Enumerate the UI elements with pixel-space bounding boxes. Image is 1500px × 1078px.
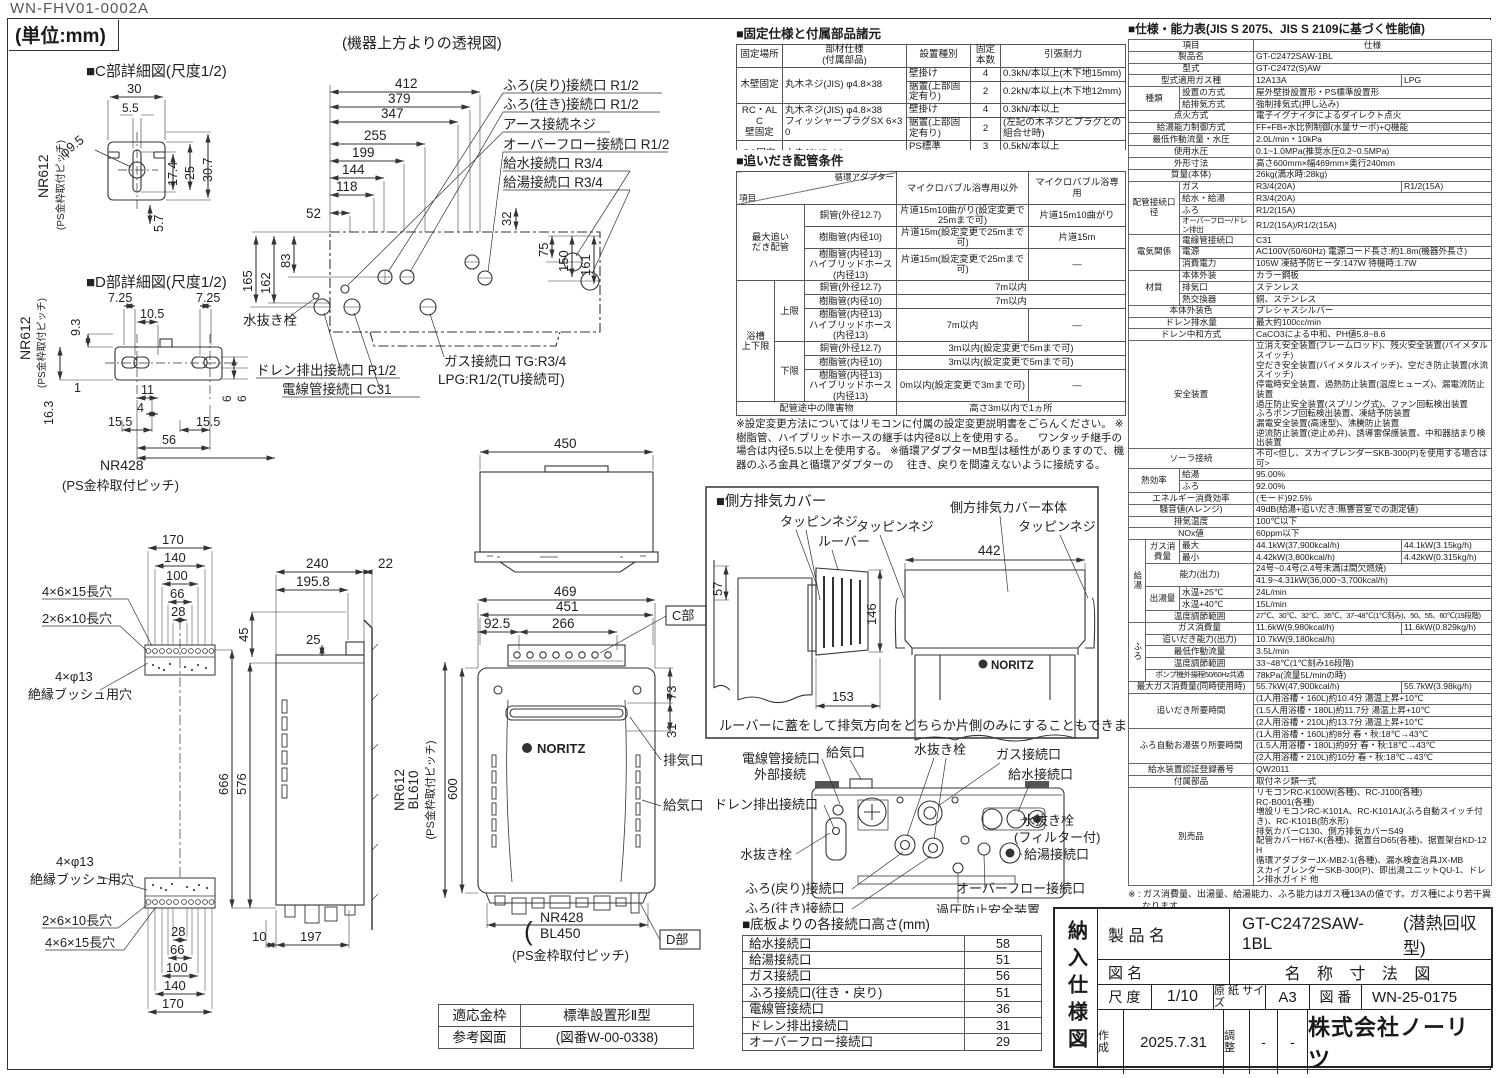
label-rear-overflow: オーバーフロー接続口: [956, 881, 1085, 896]
label-rear-filter-sub: (フィルター付): [1014, 830, 1100, 845]
cell: 0m以内(設定変更で3mまで可): [897, 369, 1029, 402]
cell: R3/4(20A): [1254, 181, 1402, 193]
cell: 樹脂管(内径13) ハイブリッドホース(内径13): [805, 369, 897, 402]
cell: (1.5人用浴槽・180L)約9分 春・秋:18℃→43℃: [1254, 740, 1492, 752]
dim-d-6b: 6: [235, 395, 249, 402]
dim-c-30-7: 30.7: [201, 158, 215, 182]
cell: 0.3kN/本以上: [1001, 104, 1126, 118]
cell: 高さ3m以内で1ヵ所: [897, 402, 1126, 416]
document-code: WN-FHV01-0002A: [10, 0, 149, 17]
dim-469: 469: [554, 584, 577, 599]
cell: 56: [965, 968, 1042, 984]
cell: 給湯接続口: [743, 952, 965, 968]
dim-52: 52: [306, 206, 321, 221]
cell: 11.6kW(0.829kg/h): [1402, 622, 1492, 634]
dim-10: 10: [252, 929, 266, 944]
cell: ポンプ機外揚程50/60Hz共通: [1146, 669, 1254, 681]
label-louver: ルーバー: [818, 534, 870, 549]
dim-c-25: 25: [183, 166, 197, 180]
cell: GT-C2472(S)AW: [1254, 63, 1492, 75]
label-hole-c-sub-bottom: 絶縁ブッシュ用穴: [30, 872, 134, 887]
cell: 銅管(外径12.7): [805, 281, 897, 295]
dim-144: 144: [342, 162, 365, 177]
cell: 11.6kW(9,980kcal/h): [1254, 622, 1402, 634]
cell: ドレン排水量: [1129, 317, 1254, 329]
adjust-value-1: -: [1250, 1010, 1278, 1074]
cell: (1.5人用浴槽・180L)約11.7分 湯温上昇+10℃: [1254, 705, 1492, 717]
cell: 105W 凍結予防ヒータ:147W 待機時:1.7W: [1254, 258, 1492, 270]
dim-451: 451: [556, 599, 579, 614]
cell: 外形寸法: [1129, 157, 1254, 169]
label-nr612: NR612: [392, 769, 407, 811]
cell: 給水・給湯: [1180, 193, 1254, 205]
cell: (モード)92.5%: [1254, 493, 1492, 505]
cell: プレシャスシルバー: [1254, 305, 1492, 317]
drawing-name-value: 名 称 寸 法 図: [1230, 960, 1491, 984]
dim-45: 45: [236, 628, 251, 642]
cell: QW2011: [1254, 764, 1492, 776]
cell: ソーラ接続: [1129, 449, 1254, 469]
cell: 能力(出力): [1146, 563, 1254, 587]
dim-d-6a: 6: [220, 395, 234, 402]
dim-442: 442: [978, 543, 1001, 558]
cell: オーバーフロー接続口: [743, 1034, 965, 1050]
cell: 2: [971, 81, 1001, 104]
cell: ドレン中和方式: [1129, 329, 1254, 341]
dim-d-11: 11: [141, 383, 154, 397]
title-block-side-label: 納入仕様図: [1055, 909, 1098, 1066]
connection-height-table: 給水接続口58 給湯接続口51 ガス接続口56 ふろ接続口(往き・戻り)51 電…: [742, 935, 1042, 1051]
cell: 参考図面: [439, 1027, 521, 1049]
spec-table: 項目仕様 製品名GT-C2472SAW-1BL 型式GT-C2472(S)AW …: [1128, 39, 1492, 886]
c-detail-drawing: ■C部詳細図(尺度1/2) 30 5.5 φ9.5 17.4 25 30.7 5…: [35, 63, 227, 232]
created-label: 作 成: [1098, 1010, 1124, 1074]
cell: FF+FB+水比例制御(水量サーボ)+Q機能: [1254, 122, 1492, 134]
d-pitch2-label: NR428: [100, 457, 144, 473]
cell: ふろ: [1180, 481, 1254, 493]
dim-197: 197: [300, 929, 322, 944]
cell: 熱効率: [1129, 469, 1180, 493]
cell: 追いだき所要時間: [1129, 693, 1254, 728]
cell: 電線管接続口: [743, 1001, 965, 1017]
label-bl450: BL450: [540, 925, 581, 941]
label-rear-drain-plug-filter: 水抜き栓: [1022, 813, 1074, 828]
cell: 7m以内: [897, 309, 1029, 342]
cell: 4.42kW(0.315kg/h): [1402, 552, 1492, 564]
cell: 15L/min: [1254, 599, 1492, 611]
cell: 型式: [1129, 63, 1254, 75]
cell: 丸木ネジ(JIS) φ4.8×38: [783, 67, 907, 104]
cell: NOx値: [1129, 528, 1254, 540]
cell: 木壁固定: [737, 67, 783, 104]
cell: 7m以内: [897, 295, 1126, 309]
label-exhaust-port: 排気口: [663, 753, 704, 768]
cell: 給水装置認証登録番号: [1129, 764, 1254, 776]
cell: 点火方式: [1129, 110, 1254, 122]
drawing-no-value: WN-25-0175: [1362, 985, 1491, 1009]
label-hole-a-bottom: 4×6×15長穴: [45, 935, 115, 950]
drawing-sheet: WN-FHV01-0002A (単位:mm) ■C部詳細図(尺度1/2) 30 …: [0, 0, 1500, 1078]
cell: (2人用浴槽・210L)約10分 春・秋:18℃→43℃: [1254, 752, 1492, 764]
label-hole-b-top: 2×6×10長穴: [42, 611, 112, 626]
cell: ガス接続口: [743, 968, 965, 984]
dim-347: 347: [381, 106, 404, 121]
dim-t66: 66: [170, 586, 184, 601]
cell: 設置種別: [907, 45, 971, 68]
cell: 取付ネジ類一式: [1254, 776, 1492, 788]
cell: ふろ自動お湯張り所要時間: [1129, 728, 1254, 763]
cell: R1/2(15A)/R1/2(15A): [1254, 216, 1492, 234]
top-view-title: (機器上方よりの透視図): [342, 35, 502, 52]
cell: 熱交換器: [1180, 294, 1254, 306]
cell: RC・ALC 壁固定: [737, 104, 783, 141]
dim-d-10-5: 10.5: [140, 307, 164, 321]
cell: 固定本数: [971, 45, 1001, 68]
cell: 給湯: [1180, 469, 1254, 481]
d-pitch-sub: (PS金枠取付ピッチ): [35, 298, 48, 388]
dim-d-1: 1: [74, 381, 81, 395]
cell: 電源: [1180, 246, 1254, 258]
label-hole-c-top: 4×φ13: [55, 669, 93, 684]
cell: 製品名: [1129, 51, 1254, 63]
cell: 4: [971, 67, 1001, 81]
cell: 95.00%: [1254, 469, 1492, 481]
label-cover-body: 側方排気カバー本体: [950, 500, 1067, 515]
cell: 100℃以下: [1254, 516, 1492, 528]
d-pitch2-sub: (PS金枠取付ピッチ): [62, 478, 179, 493]
cell: C31: [1254, 235, 1492, 247]
cell: 0.3kN/本以上(木下地15mm): [1001, 67, 1126, 81]
dim-412: 412: [395, 76, 418, 91]
dim-d-15-5l: 15.5: [108, 415, 132, 429]
side-cover-logo: NORITZ: [991, 660, 1034, 672]
label-hole-c-sub-top: 絶縁ブッシュ用穴: [28, 687, 132, 702]
d-detail-title: ■D部詳細図(尺度1/2): [86, 274, 227, 291]
label-furo-go: ふろ(往き)接続口 R1/2: [503, 96, 639, 112]
cell: 給水接続口: [743, 936, 965, 952]
dim-576: 576: [234, 773, 249, 795]
cell: 強制排気式(押し込み): [1254, 98, 1492, 110]
cell: 消費電力: [1180, 258, 1254, 270]
cell: 本体外装: [1180, 270, 1254, 282]
cell: 型式適用ガス種: [1129, 75, 1254, 87]
cell: 材質: [1129, 270, 1180, 305]
cell: 最低作動流量: [1146, 646, 1254, 658]
side-view-drawing: 240 22 195.8 25 45 666 576 10 197: [215, 556, 393, 948]
spec-title: ■仕様・能力表(JIS S 2075、JIS S 2109に基づく性能値): [1128, 20, 1492, 37]
cell: LPG: [1402, 75, 1492, 87]
dim-162: 162: [258, 272, 273, 294]
product-name-value: GT-C2472SAW-1BL: [1242, 914, 1381, 954]
cell: 44.1kW(3.15kg/h): [1402, 540, 1492, 552]
label-drain-plug: 水抜き栓: [243, 313, 297, 328]
label-hole-a-top: 4×6×15長穴: [42, 584, 112, 599]
cell: 24L/min: [1254, 587, 1492, 599]
reheating-table: 項目 循環アダプター マイクロバブル浴専用以外 マイクロバブル浴専用 最大追い …: [736, 171, 1126, 416]
paper-size-value: A3: [1266, 985, 1310, 1009]
cell: 電線管接続口: [1180, 235, 1254, 247]
dim-600: 600: [445, 778, 460, 800]
cell: ドレン排出接続口: [743, 1017, 965, 1033]
cell: 据置(上部固定有り): [907, 118, 971, 141]
dim-25: 25: [306, 632, 320, 647]
label-rear-gas: ガス接続口: [996, 747, 1061, 762]
reheating-notes: ※設定変更方法についてはリモコンに付属の設定変更説明書をごらんください。 ※樹脂…: [736, 418, 1126, 473]
d-pitch-label: NR612: [17, 316, 33, 360]
cell: 41.9~4.31kW(36,000~3,700kcal/h): [1254, 575, 1492, 587]
scale-label: 尺 度: [1098, 985, 1152, 1009]
cell: 給排気方式: [1180, 98, 1254, 110]
dim-150: 150: [556, 250, 571, 272]
cell: 標準設置形Ⅱ型: [521, 1005, 694, 1027]
dim-83: 83: [278, 254, 293, 268]
label-hole-c-bottom: 4×φ13: [56, 854, 94, 869]
cell: 温度調節範囲: [1146, 610, 1254, 622]
cell: 配管接続口径: [1129, 181, 1180, 235]
cell: 片道15m(設定変更で25mまで可): [897, 248, 1029, 281]
cell: ガス: [1180, 181, 1254, 193]
dim-118: 118: [336, 179, 358, 194]
cell: 丸木ネジ(JIS) φ4.8×38 フィッシャープラグSX 6×30: [783, 104, 907, 141]
cell: 片道15m10曲がり(設定変更で25mまで可): [897, 204, 1029, 226]
cell: 最小: [1180, 552, 1254, 564]
cell: 銅管(外径12.7): [805, 341, 897, 355]
label-rear-hot-out: 給湯接続口: [1024, 847, 1089, 862]
cell: 排気温度: [1129, 516, 1254, 528]
front-view-drawing: 450 469 451 92.5 266 C部 73 31: [392, 436, 706, 963]
label-nr428: NR428: [540, 909, 584, 925]
cell: 上限: [775, 281, 805, 342]
dim-t170: 170: [162, 532, 184, 547]
cell: 質量(本体): [1129, 169, 1254, 181]
cell: R3/4(20A): [1254, 193, 1492, 205]
cell: 最大: [1180, 540, 1254, 552]
cell: 使用水圧: [1129, 146, 1254, 158]
dim-d-56: 56: [162, 433, 176, 447]
dim-199: 199: [352, 145, 375, 160]
dim-266: 266: [552, 616, 575, 631]
cell: 樹脂管(内径10): [805, 226, 897, 248]
cell: AC100V(50/60Hz) 電源コード長さ:約1.8m(機器外長さ): [1254, 246, 1492, 258]
cell: 電気関係: [1129, 235, 1180, 270]
dim-450: 450: [554, 436, 577, 451]
cell: 最大約100cc/min: [1254, 317, 1492, 329]
cell: ふろ接続口(往き・戻り): [743, 985, 965, 1001]
cell: 設置の方式: [1180, 87, 1254, 99]
cell: 排気口: [1180, 282, 1254, 294]
cell: ―: [1029, 248, 1126, 281]
cell: マイクロバブル浴専用以外: [897, 172, 1029, 205]
cell: ふろ: [1180, 205, 1254, 217]
cell: 不可<但し、スカイブレンダーSKB-300(P)を使用する場合は可>: [1254, 449, 1492, 469]
top-view-drawing: (機器上方よりの透視図) 412 379 347 255 199 144 118…: [240, 35, 669, 397]
label-gas1: ガス接続口 TG:R3/4: [444, 353, 567, 369]
cell: 49dB(給湯+追いだき:無響音室での測定値): [1254, 504, 1492, 516]
cell: 26kg(満水時:28kg): [1254, 169, 1492, 181]
cell: ―: [1029, 369, 1126, 402]
cell: 屋外壁掛設置形・PS標準設置形: [1254, 87, 1492, 99]
cell: 付属部品: [1129, 776, 1254, 788]
dim-b140: 140: [164, 978, 186, 993]
cell: ステンレス: [1254, 282, 1492, 294]
cell: 引張耐力: [1001, 45, 1126, 68]
cell: 配管途中の障害物: [737, 402, 897, 416]
cell: (2人用浴槽・210L)約13.7分 湯温上昇+10℃: [1254, 717, 1492, 729]
product-type-value: (潜熱回収型): [1403, 909, 1491, 959]
side-cover-title: ■側方排気カバー: [716, 493, 826, 510]
cell: 0.2kN/本以上(木下地12mm): [1001, 81, 1126, 104]
cell: CaCO3による中和、PH値5.8~8.6: [1254, 329, 1492, 341]
dim-195-8: 195.8: [296, 574, 330, 589]
cell: (1人用浴槽・160L)約10.4分 湯温上昇+10℃: [1254, 693, 1492, 705]
cell: ―: [1029, 309, 1126, 342]
cell: 36: [965, 1001, 1042, 1017]
side-cover-note: ルーバーに蓋をして排気方向をどちらか片側のみにすることもできます。: [719, 718, 1152, 733]
cell: エネルギー消費効率: [1129, 493, 1254, 505]
cell: 給湯能力制御方式: [1129, 122, 1254, 134]
dim-161: 161: [578, 254, 593, 276]
label-ps-pitch-bottom: (PS金枠取付ピッチ): [512, 948, 629, 963]
cell: (1人用浴槽・160L)約8分 春・秋:18℃→43℃: [1254, 728, 1492, 740]
company-name: 株式会社ノーリツ: [1308, 1010, 1491, 1074]
label-earth: アース接続ネジ: [503, 116, 596, 132]
cell: 4.42kW(3,800kcal/h): [1254, 552, 1402, 564]
cell: 高さ600mm×幅469mm×奥行240mm: [1254, 157, 1492, 169]
reheating-title: ■追いだき配管条件: [736, 150, 1126, 169]
label-conduit: 電線管接続口 C31: [282, 381, 392, 397]
dim-240: 240: [306, 556, 329, 571]
cell: 水温+25℃: [1180, 587, 1254, 599]
paper-size-label: 原 紙 サイズ: [1214, 985, 1266, 1009]
dim-d-15-5r: 15.5: [196, 415, 220, 429]
c-pitch-sub: (PS金枠取付ピッチ): [54, 140, 67, 230]
cell: 下限: [775, 341, 805, 402]
label-rear-drain-out: ドレン排出接続口: [714, 797, 818, 812]
dim-t28: 28: [171, 604, 185, 619]
cell: 31: [965, 1017, 1042, 1033]
label-rear-drain-plug-left: 水抜き栓: [740, 847, 792, 862]
reheating-piping-block: ■追いだき配管条件 項目 循環アダプター マイクロバブル浴専用以外 マイクロバブ…: [736, 150, 1126, 473]
header-adapter: 循環アダプター: [835, 173, 895, 183]
cell: 種類: [1129, 87, 1180, 111]
cell: 24号~0.4号(2.4号未満は間欠燃焼): [1254, 563, 1492, 575]
cell: (図番W-00-0338): [521, 1027, 694, 1049]
c-pitch-label: NR612: [35, 154, 51, 198]
cell: 水温+40℃: [1180, 599, 1254, 611]
label-tapping-3: タッピンネジ: [1018, 519, 1096, 534]
header-item: 項目: [739, 194, 756, 204]
cell: 10.7kW(9,180kcal/h): [1254, 634, 1492, 646]
dim-d-9-3: 9.3: [69, 319, 83, 336]
side-exhaust-cover-section: ■側方排気カバー タッピンネジ ルーバー 57 146 153 NORITZ 4…: [706, 487, 1152, 741]
dim-22: 22: [378, 556, 393, 571]
label-tapping-1: タッピンネジ: [780, 514, 858, 529]
drawing-no-label: 図 番: [1310, 985, 1362, 1009]
cell: 3.5L/min: [1254, 646, 1492, 658]
label-overflow: オーバーフロー接続口 R1/2: [503, 136, 669, 152]
fixing-spec-title: ■固定仕様と付属部品諸元: [736, 23, 1126, 42]
cell: オーバーフロー/ドレン排出: [1180, 216, 1254, 234]
label-gas2: LPG:R1/2(TU接続可): [438, 371, 565, 387]
dim-c-17-4: 17.4: [166, 162, 180, 186]
cell: GT-C2472SAW-1BL: [1254, 51, 1492, 63]
dim-c-5-5: 5.5: [122, 101, 139, 115]
label-rear-air-in: 給気口: [826, 745, 865, 760]
cell: 27℃、30℃、32℃、35℃、37~48℃(1℃刻み)、50、55、60℃(1…: [1254, 610, 1492, 622]
cell: 58: [965, 936, 1042, 952]
label-air-in-port: 給気口: [663, 798, 704, 813]
frame-reference-table: 適応金枠標準設置形Ⅱ型 参考図面(図番W-00-0338): [438, 1004, 694, 1049]
cell: 最大追い だき配管: [737, 204, 805, 281]
cell: 51: [965, 952, 1042, 968]
cell: 2: [971, 118, 1001, 141]
dim-c-30: 30: [127, 81, 141, 96]
cell: 項目: [1129, 40, 1254, 52]
dim-146: 146: [864, 603, 879, 625]
label-hot-out: 給湯接続口 R3/4: [503, 174, 603, 190]
unit-note: (単位:mm): [9, 20, 119, 51]
cell: 3m以内(設定変更で5mまで可): [897, 355, 1126, 369]
callout-c-part: C部: [672, 608, 694, 623]
label-water-in: 給水接続口 R3/4: [503, 155, 603, 171]
brace-glyph: (: [524, 916, 533, 946]
cell: 立消え安全装置(フレームロッド)、残火安全装置(バイメタルスイッチ) 空だき安全…: [1254, 341, 1492, 449]
cell: 仕様: [1254, 40, 1492, 52]
dim-379: 379: [388, 91, 411, 106]
c-detail-title: ■C部詳細図(尺度1/2): [86, 63, 227, 80]
created-value: 2025.7.31: [1124, 1010, 1224, 1074]
cell: 壁掛け: [907, 67, 971, 81]
cell: 騒音値(Aレンジ): [1129, 504, 1254, 516]
cell: 適応金枠: [439, 1005, 521, 1027]
dim-c-5-7: 5.7: [152, 215, 166, 232]
cell: 追いだき能力(出力): [1146, 634, 1254, 646]
cell: カラー鋼板: [1254, 270, 1492, 282]
label-rear-conduit: 電線管接続口: [742, 751, 820, 766]
adjust-label: 調 整: [1224, 1010, 1250, 1074]
dim-d-16-3: 16.3: [42, 401, 56, 425]
product-name-label: 製 品 名: [1098, 909, 1230, 959]
cell: 44.1kW(37,900kcal/h): [1254, 540, 1402, 552]
cell: 固定場所: [737, 45, 783, 68]
dim-d-7-25l: 7.25: [108, 291, 132, 305]
cell: 温度調節範囲: [1146, 658, 1254, 670]
dim-153: 153: [832, 689, 854, 704]
dim-b100: 100: [166, 960, 188, 975]
cell: 樹脂管(内径13) ハイブリッドホース(内径13): [805, 309, 897, 342]
label-ps-pitch-left: (PS金枠取付ピッチ): [423, 741, 437, 840]
cell: ガス消費量: [1146, 540, 1180, 564]
cell: 給湯: [1129, 540, 1146, 623]
noritz-logo: NORITZ: [537, 741, 585, 756]
bracket-bottom-drawing: 4×φ13 絶縁ブッシュ用穴 2×6×10長穴 4×6×15長穴 28 66 1…: [30, 854, 215, 1012]
cell: 7m以内: [897, 281, 1126, 295]
cell: 12A13A: [1254, 75, 1402, 87]
dim-t100: 100: [166, 568, 188, 583]
dim-32: 32: [499, 212, 514, 226]
cell: ガス消費量: [1146, 622, 1254, 634]
cell: 壁掛け: [907, 104, 971, 118]
cell: 3m以内(設定変更で5mまで可): [897, 341, 1126, 355]
cell: 78kPa(流量5L/minの時): [1254, 669, 1492, 681]
dim-d-4: 4: [137, 401, 144, 415]
cell: 電子イグナイタによるダイレクト点火: [1254, 110, 1492, 122]
cell: 安全装置: [1129, 341, 1254, 449]
dim-b170: 170: [162, 996, 184, 1011]
cell: 片道15m: [1029, 226, 1126, 248]
cell: 項目 循環アダプター: [737, 172, 897, 205]
cell: 樹脂管(内径13) ハイブリッドホース(内径13): [805, 248, 897, 281]
